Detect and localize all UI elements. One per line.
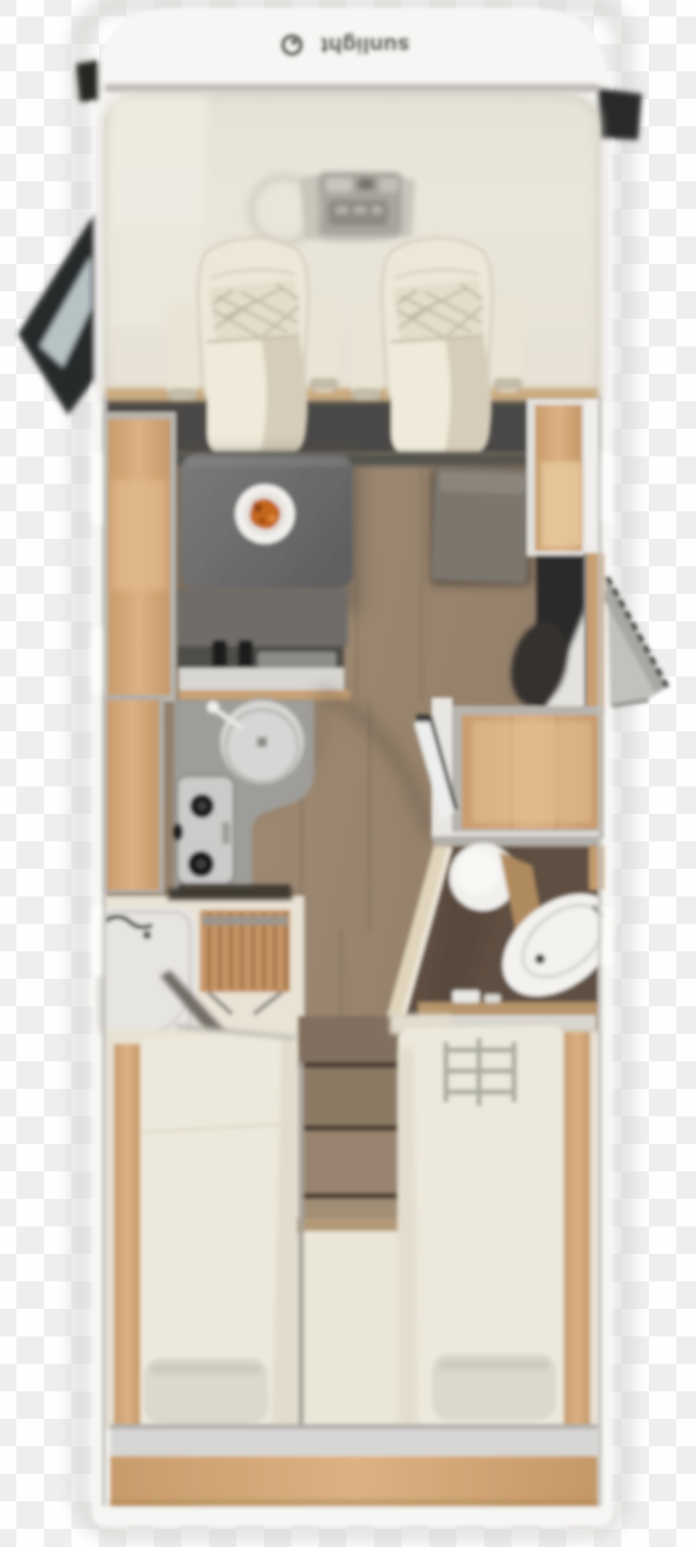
svg-text:sunlight: sunlight <box>320 33 410 58</box>
